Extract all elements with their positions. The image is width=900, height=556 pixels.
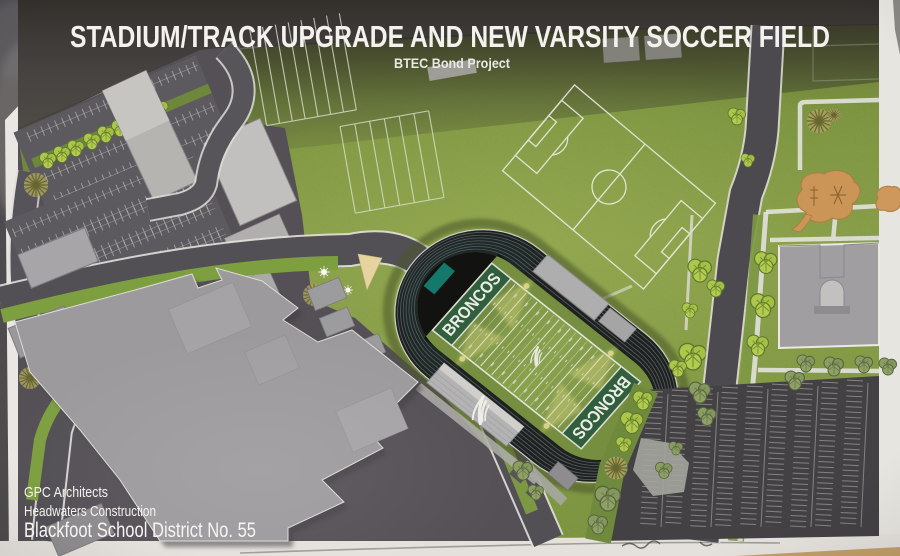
svg-text:GPC Architects: GPC Architects (24, 484, 108, 501)
svg-text:BTEC Bond Project: BTEC Bond Project (394, 55, 510, 71)
svg-text:Headwaters Construction: Headwaters Construction (24, 503, 156, 520)
svg-text:Blackfoot School District No.: Blackfoot School District No. 55 (24, 519, 256, 542)
svg-text:STADIUM/TRACK UPGRADE AND NEW: STADIUM/TRACK UPGRADE AND NEW VARSITY SO… (70, 19, 830, 54)
